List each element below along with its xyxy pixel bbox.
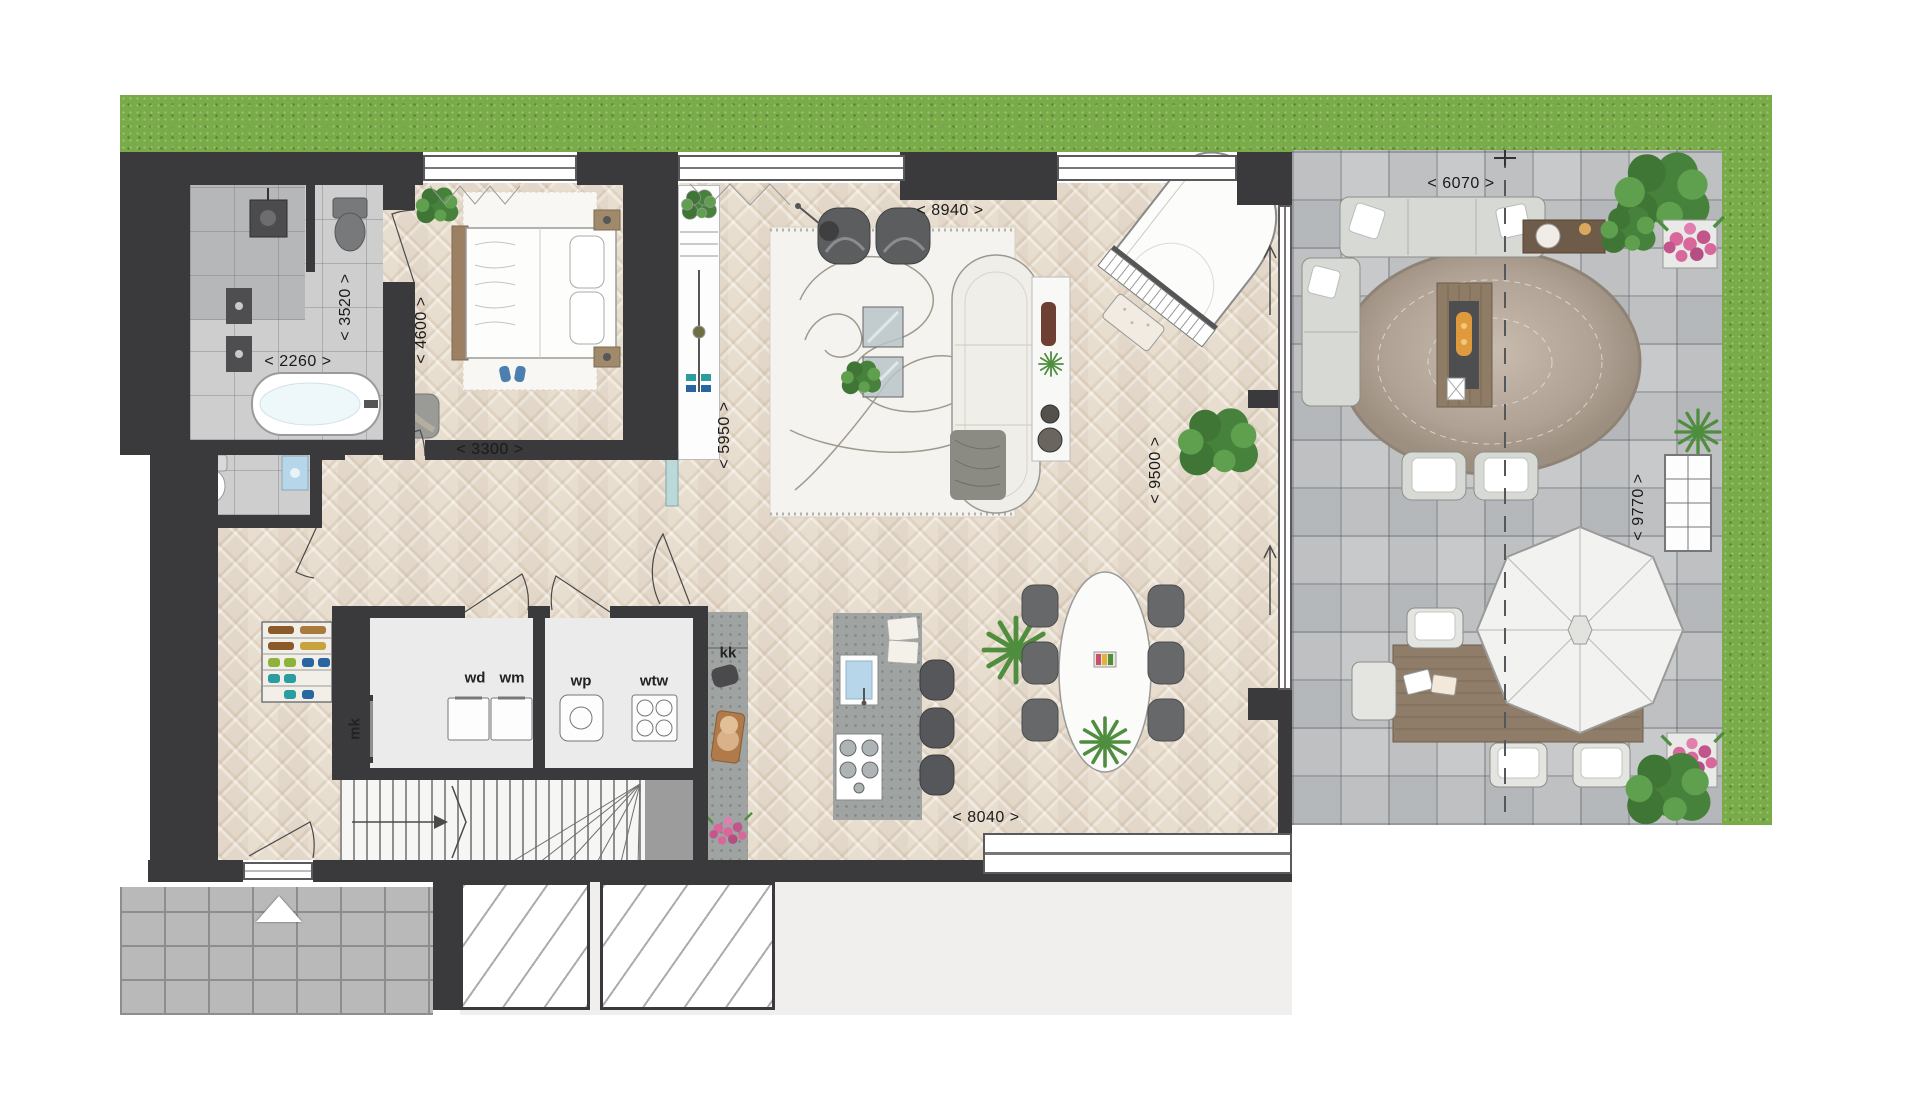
bedroom-furniture: [393, 184, 790, 438]
appliances: [448, 695, 677, 741]
wall: [1278, 690, 1292, 835]
wall: [383, 282, 415, 460]
dim-label-terrace-width: < 6070 >: [1427, 175, 1494, 193]
living-window-top-right: [1057, 155, 1237, 181]
dim-label-bath-width: < 2260 >: [264, 353, 331, 371]
label-meter-cupboard: mk: [347, 718, 364, 740]
kitchen-details: [705, 616, 954, 844]
bedroom-window: [423, 155, 577, 181]
wall: [1237, 152, 1292, 205]
wall: [577, 152, 678, 185]
wall: [528, 606, 550, 618]
floor-plan: < 2260 > < 3520 > < 4600 > < 3300 > < 59…: [0, 0, 1920, 1097]
dim-label-terrace-length: < 9770 >: [1630, 473, 1648, 540]
wall: [306, 185, 315, 272]
label-dryer: wd: [465, 670, 486, 687]
dim-label-living-width: < 8940 >: [916, 202, 983, 220]
label-fridge: kk: [720, 645, 737, 662]
living-window-bottom: [983, 833, 1292, 874]
terrace-sliding-door: [1278, 205, 1292, 690]
label-heat-recovery: wtw: [640, 673, 668, 690]
wall: [150, 515, 322, 528]
wall: [623, 185, 678, 460]
dim-label-bedroom-length: < 4600 >: [413, 296, 431, 363]
dim-label-bedroom-width: < 3300 >: [456, 441, 523, 459]
wall: [148, 860, 243, 882]
shoe-rack: [262, 622, 332, 702]
wall: [120, 152, 190, 455]
wall: [332, 606, 370, 780]
dim-label-bath-length: < 3520 >: [337, 273, 355, 340]
wall: [150, 440, 383, 455]
wall: [433, 882, 460, 1010]
wall: [693, 606, 708, 860]
label-heat-pump: wp: [571, 673, 592, 690]
wall: [310, 455, 322, 515]
dim-label-hall-length: < 5950 >: [716, 401, 734, 468]
terrace-furniture: [1302, 150, 1724, 824]
wall: [310, 440, 345, 460]
living-window-top-left: [678, 155, 905, 181]
front-door-sill: [243, 862, 313, 880]
wall: [533, 618, 545, 768]
dim-label-living-length: < 9500 >: [1147, 436, 1165, 503]
wall: [332, 768, 708, 780]
label-washer: wm: [499, 670, 524, 687]
dining-set: [1022, 572, 1184, 772]
dim-label-kitchen-width: < 8040 >: [952, 809, 1019, 827]
wall: [900, 152, 1057, 200]
wall: [383, 185, 415, 210]
